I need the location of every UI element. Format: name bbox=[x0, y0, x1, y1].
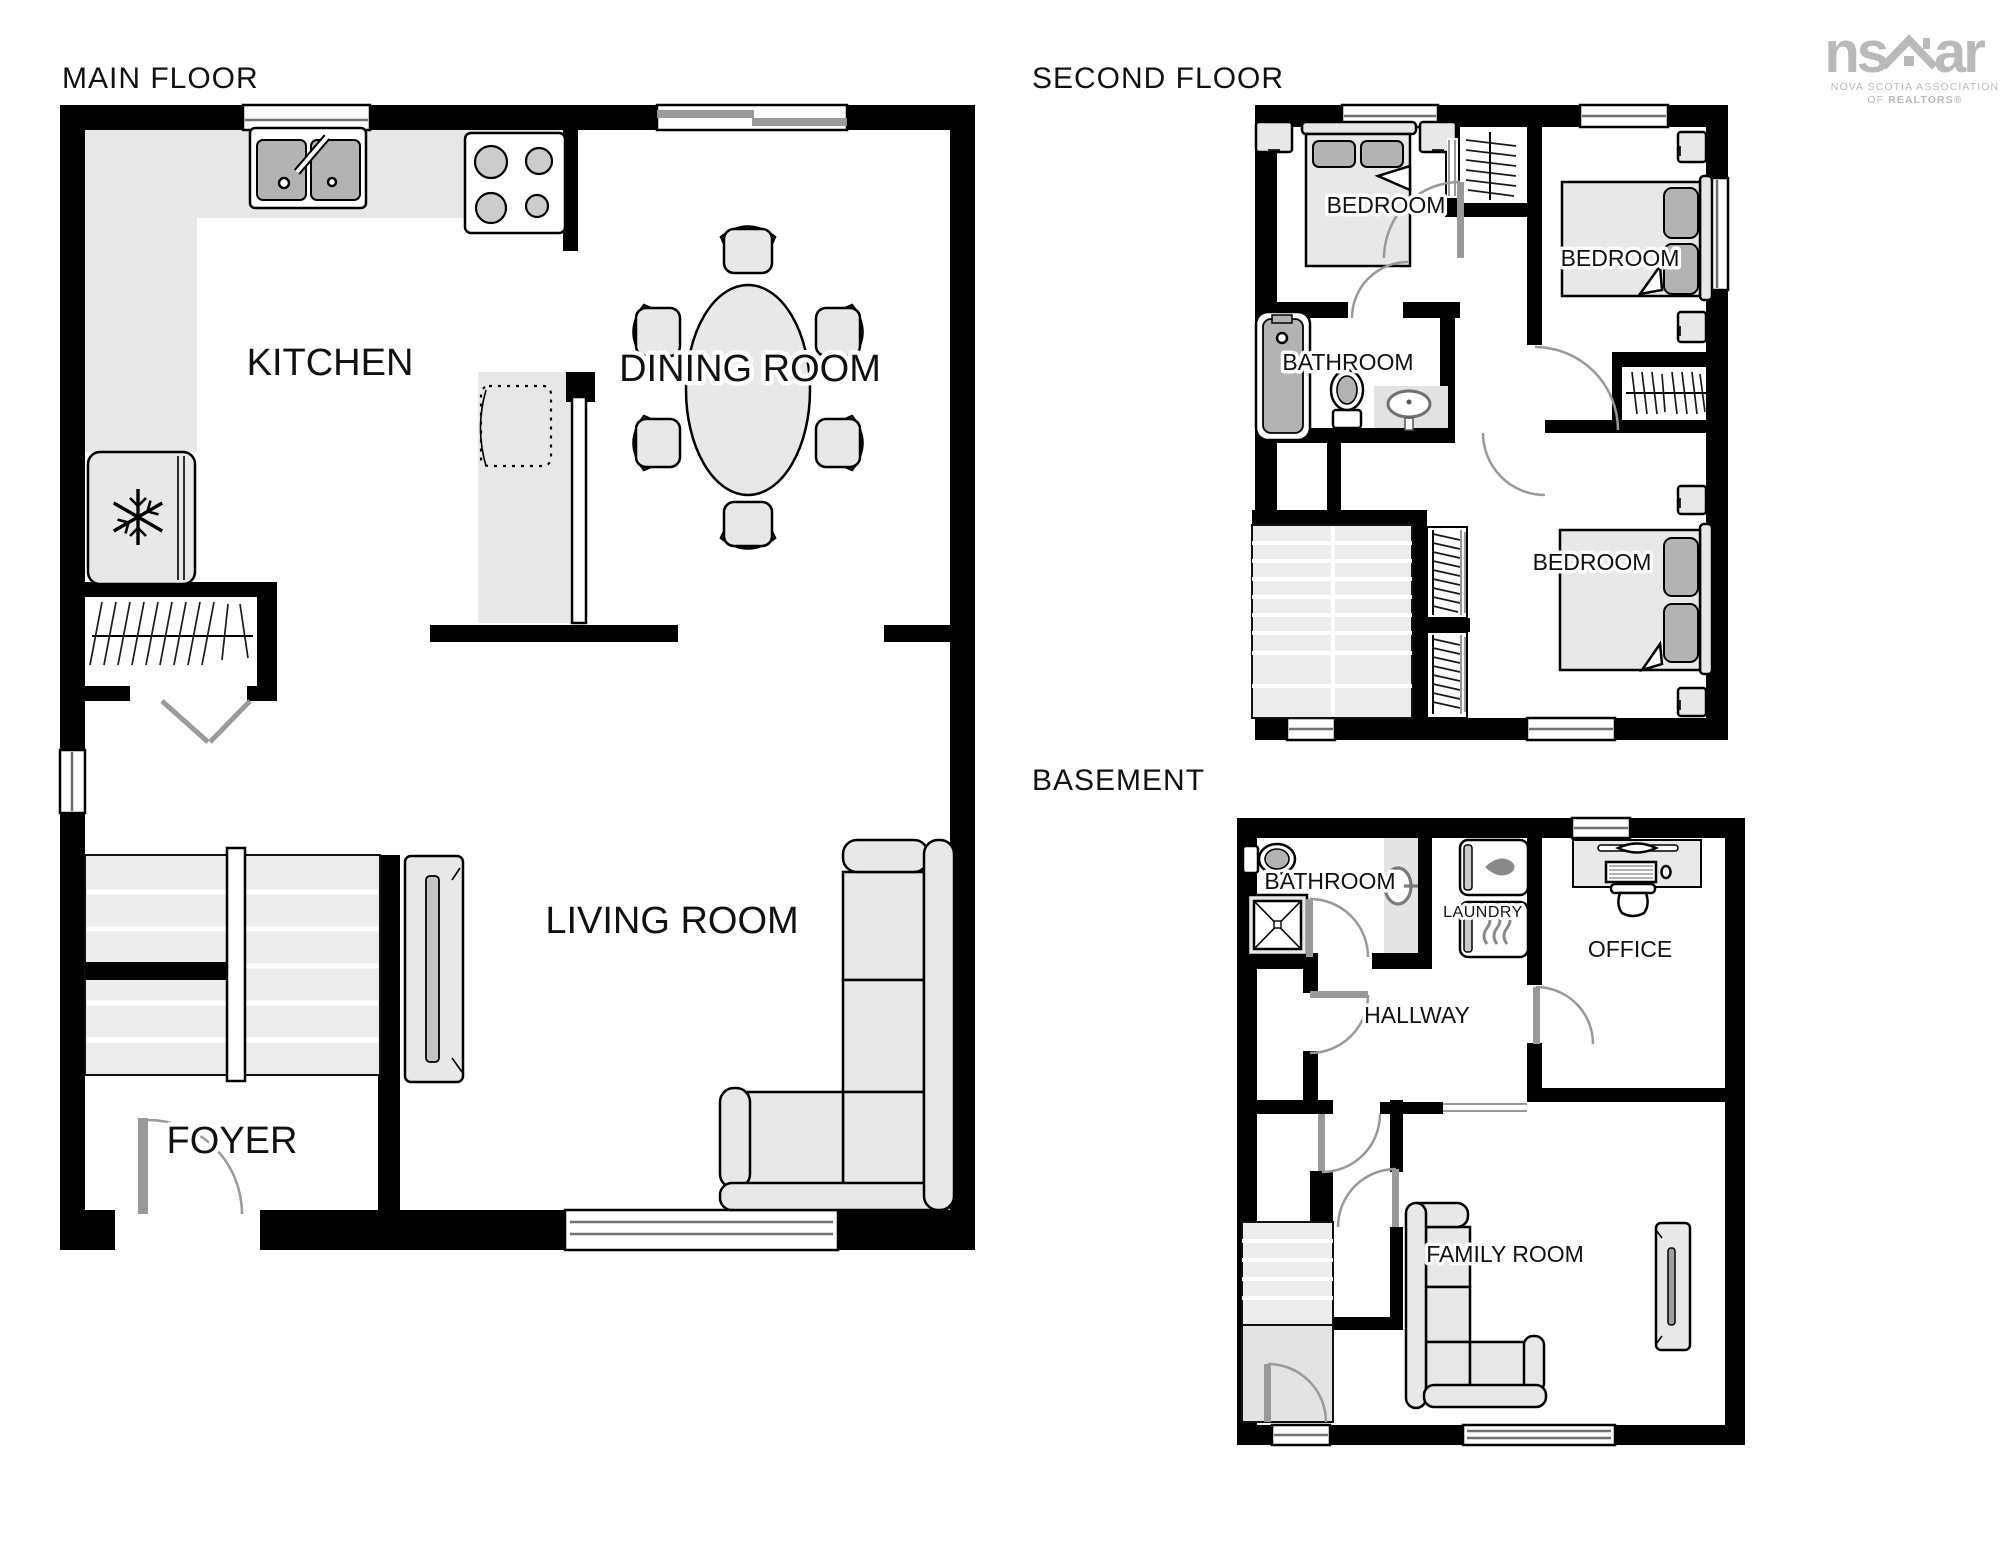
shower-icon bbox=[1248, 895, 1307, 955]
tv-console-icon bbox=[405, 856, 463, 1082]
stove-icon bbox=[465, 133, 565, 233]
dining-chair bbox=[721, 227, 775, 274]
second-floor-window-bottom-left bbox=[1287, 718, 1335, 740]
entry-closet bbox=[90, 602, 253, 742]
dining-chair bbox=[816, 416, 863, 470]
bedroom3-door bbox=[1483, 433, 1545, 495]
hallway-cased-opening bbox=[1443, 1102, 1527, 1114]
second-bathroom-label: BATHROOM bbox=[1282, 349, 1413, 375]
second-stairs-icon bbox=[1252, 525, 1412, 718]
second-floor-plan: SECOND FLOOR bbox=[1032, 62, 1728, 740]
bathroom-door bbox=[1352, 262, 1408, 318]
dining-chair bbox=[721, 502, 775, 549]
nsar-logo: ns ar NOVA SCOTIA ASSOCIATION OFREALTORS… bbox=[1824, 20, 1999, 106]
bedroom2-window-top bbox=[1580, 105, 1668, 127]
floor-plan-svg: MAIN FLOOR bbox=[0, 0, 2000, 1545]
dining-chair bbox=[634, 416, 681, 470]
main-floor-plan: MAIN FLOOR bbox=[60, 62, 975, 1250]
logo-tagline-1: NOVA SCOTIA ASSOCIATION bbox=[1831, 81, 1999, 93]
office-window bbox=[1572, 818, 1630, 838]
family-sofa-icon bbox=[1406, 1203, 1546, 1408]
bedroom2-label: BEDROOM bbox=[1561, 245, 1680, 271]
logo-tagline-2-brand: REALTORS® bbox=[1888, 94, 1962, 106]
office-label: OFFICE bbox=[1588, 936, 1672, 962]
basement-sink-icon bbox=[1384, 838, 1418, 953]
living-room-label: LIVING ROOM bbox=[545, 900, 798, 942]
logo-tagline-2: OFREALTORS® bbox=[1867, 94, 1962, 106]
fridge-icon bbox=[88, 452, 195, 584]
bed-icon-bedroom2 bbox=[1562, 176, 1712, 300]
hall-closet-lower bbox=[1427, 632, 1467, 718]
family-room-door bbox=[1338, 1169, 1399, 1227]
toilet-icon bbox=[1331, 370, 1363, 428]
bedroom1-label: BEDROOM bbox=[1327, 192, 1446, 218]
family-room-label: FAMILY ROOM bbox=[1426, 1241, 1584, 1267]
kitchen-label: KITCHEN bbox=[247, 342, 414, 384]
house-icon bbox=[1886, 38, 1932, 66]
floor-plan-canvas: MAIN FLOOR bbox=[0, 0, 2000, 1545]
living-room-window bbox=[565, 1210, 838, 1250]
left-wall-window bbox=[60, 750, 85, 813]
bedroom2-closet bbox=[1626, 372, 1710, 414]
main-stairs-icon bbox=[85, 848, 380, 1081]
logo-text-right: ar bbox=[1934, 20, 1985, 85]
closet-double-door bbox=[162, 701, 250, 742]
dining-room-label: DINING ROOM bbox=[619, 348, 881, 390]
bathroom-sink-icon bbox=[1374, 386, 1448, 430]
basement-plan: BASEMENT bbox=[1032, 764, 1745, 1445]
stairwell-door bbox=[1318, 1114, 1380, 1172]
basement-title: BASEMENT bbox=[1032, 764, 1205, 797]
logo-tagline-2-prefix: OF bbox=[1867, 94, 1884, 106]
bedroom2-door bbox=[1535, 347, 1618, 430]
family-tv-icon bbox=[1656, 1223, 1690, 1350]
basement-stairs-icon bbox=[1242, 1222, 1333, 1325]
sectional-sofa-icon bbox=[720, 840, 954, 1210]
office-door bbox=[1533, 987, 1593, 1044]
family-room-window bbox=[1463, 1425, 1615, 1445]
hallway-label: HALLWAY bbox=[1364, 1002, 1470, 1028]
laundry-label: LAUNDRY bbox=[1443, 904, 1523, 921]
bathtub-icon bbox=[1256, 312, 1310, 440]
kitchen-sink-icon bbox=[250, 128, 366, 208]
desk-icon bbox=[1573, 840, 1701, 887]
hallway-door bbox=[1310, 991, 1368, 1053]
washer-icon bbox=[1460, 840, 1528, 895]
main-floor-title: MAIN FLOOR bbox=[62, 62, 259, 95]
bed-icon-bedroom3 bbox=[1560, 524, 1712, 674]
office-chair-icon bbox=[1611, 884, 1655, 916]
under-stair-storage bbox=[1242, 1325, 1333, 1422]
second-floor-title: SECOND FLOOR bbox=[1032, 62, 1284, 95]
basement-bathroom-label: BATHROOM bbox=[1264, 868, 1395, 894]
foyer-label: FOYER bbox=[167, 1120, 298, 1162]
basement-bathroom-door bbox=[1306, 899, 1368, 957]
main-floor-walls bbox=[60, 105, 975, 1250]
bedroom3-window-bottom bbox=[1527, 718, 1615, 740]
logo-text-left: ns bbox=[1824, 20, 1886, 85]
bedroom3-label: BEDROOM bbox=[1533, 549, 1652, 575]
dining-window bbox=[657, 105, 847, 130]
hall-closet-upper bbox=[1427, 527, 1467, 618]
kitchen-window bbox=[243, 105, 370, 130]
basement-window-left bbox=[1272, 1425, 1330, 1445]
